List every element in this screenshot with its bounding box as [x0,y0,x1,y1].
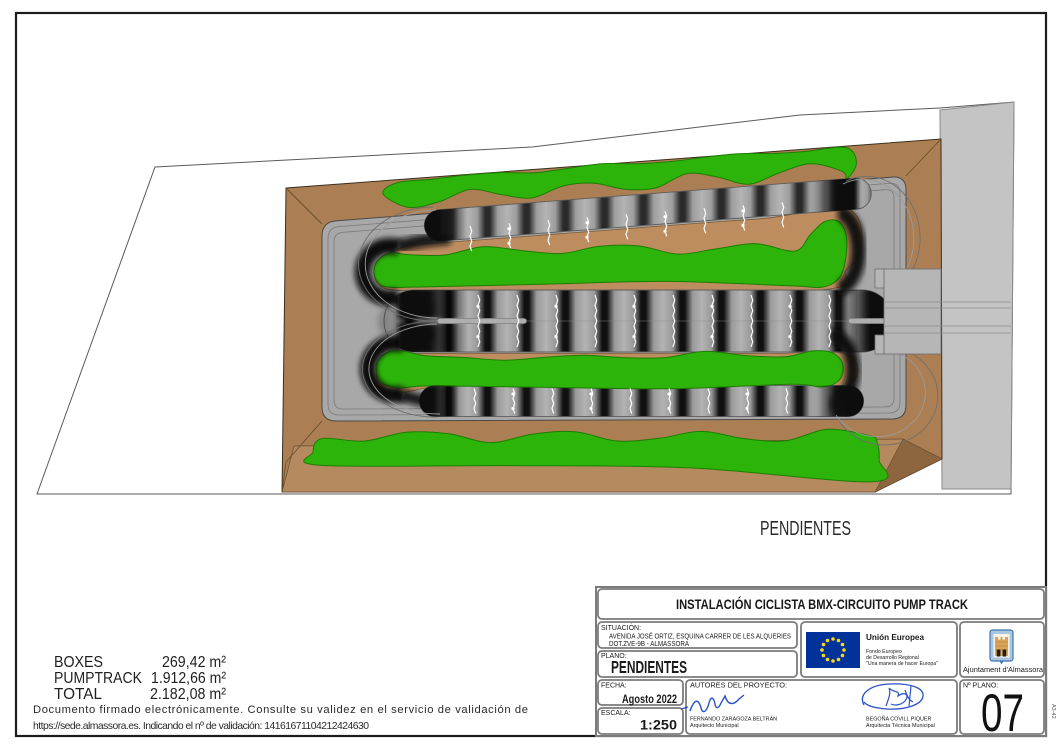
svg-text:ESCALA:: ESCALA: [601,710,631,717]
svg-text:PUMPTRACK: PUMPTRACK [54,670,142,687]
svg-text:Agosto 2022: Agosto 2022 [622,692,677,706]
svg-text:07: 07 [981,684,1024,743]
svg-text:https://sede.almassora.es. Ind: https://sede.almassora.es. Indicando el … [33,721,369,732]
svg-text:FECHA:: FECHA: [601,683,627,690]
svg-text:SITUACIÓN:: SITUACIÓN: [601,623,641,632]
svg-text:Ajuntament d'Almassora: Ajuntament d'Almassora [963,667,1043,674]
svg-text:Documento firmado electrónicam: Documento firmado electrónicamente. Cons… [33,704,528,716]
svg-text:Arquitecta Técnica Municipal: Arquitecta Técnica Municipal [866,723,935,729]
svg-text:Arquitecto Municipal: Arquitecto Municipal [690,723,739,729]
svg-text:Unión Europea: Unión Europea [866,632,924,642]
svg-text:PENDIENTES: PENDIENTES [760,518,851,540]
svg-text:2.182,08 m²: 2.182,08 m² [150,686,227,703]
svg-text:INSTALACIÓN CICLISTA BMX-CIRCU: INSTALACIÓN CICLISTA BMX-CIRCUITO PUMP T… [676,595,968,612]
svg-text:PENDIENTES: PENDIENTES [611,657,687,677]
svg-text:FERNANDO ZARAGOZA BELTRÁN: FERNANDO ZARAGOZA BELTRÁN [690,716,777,723]
svg-text:BEGOÑA COVILL PIQUER: BEGOÑA COVILL PIQUER [866,716,932,723]
svg-text:269,42 m²: 269,42 m² [162,654,227,671]
svg-text:"Una manera de hacer Europa": "Una manera de hacer Europa" [866,661,938,667]
svg-text:DOT.ZVE-9B - ALMASSORA: DOT.ZVE-9B - ALMASSORA [609,641,689,648]
svg-text:A3-42: A3-42 [1050,704,1056,719]
svg-text:AUTORES DEL PROYECTO:: AUTORES DEL PROYECTO: [690,683,787,690]
svg-text:1:250: 1:250 [640,718,677,733]
svg-text:TOTAL: TOTAL [54,686,102,703]
svg-text:BOXES: BOXES [54,654,103,671]
svg-text:1.912,66 m²: 1.912,66 m² [151,670,227,687]
svg-text:AVENIDA JOSÉ ORTIZ, ESQUINA CA: AVENIDA JOSÉ ORTIZ, ESQUINA CARRER DE LE… [609,632,791,641]
